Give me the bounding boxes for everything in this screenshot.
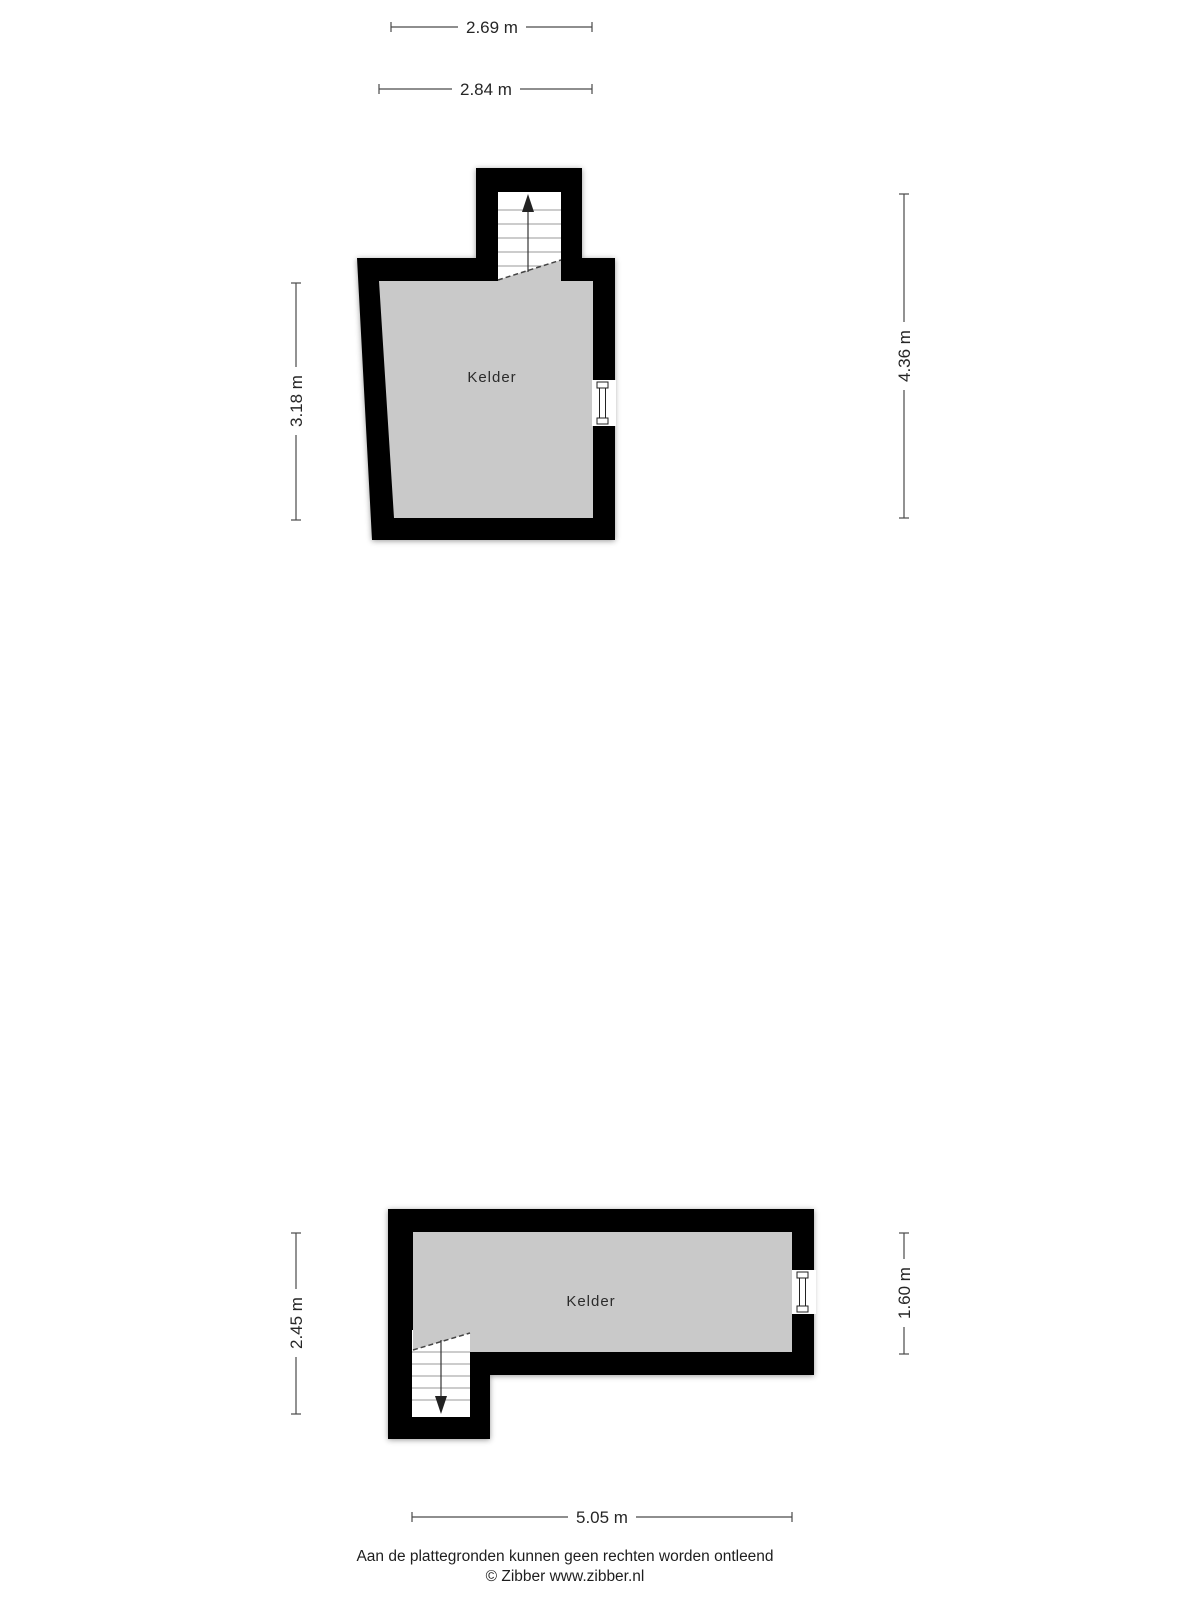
top-plan-window-icon bbox=[592, 380, 616, 426]
dim-top-right: 4.36 m bbox=[893, 194, 915, 518]
footer-copyright: © Zibber www.zibber.nl bbox=[486, 1568, 645, 1585]
dim-bottom-right-label: 1.60 m bbox=[895, 1267, 914, 1319]
bottom-room-label: Kelder bbox=[566, 1293, 615, 1310]
dim-top-inner: 2.69 m bbox=[391, 16, 592, 38]
dim-top-left: 3.18 m bbox=[285, 283, 307, 520]
footer-disclaimer: Aan de plattegronden kunnen geen rechten… bbox=[356, 1548, 773, 1565]
dim-top-right-label: 4.36 m bbox=[895, 330, 914, 382]
dim-top-outer: 2.84 m bbox=[379, 78, 592, 100]
dim-bottom-left-label: 2.45 m bbox=[287, 1297, 306, 1349]
dim-bottom-width: 5.05 m bbox=[412, 1506, 792, 1528]
floorplan-page: Kelder 2.69 m 2.84 m 3.18 m bbox=[0, 0, 1200, 1600]
floorplan-top: Kelder bbox=[357, 168, 616, 540]
floorplan-bottom: Kelder bbox=[388, 1209, 816, 1439]
dim-top-left-label: 3.18 m bbox=[287, 375, 306, 427]
top-room-label: Kelder bbox=[467, 369, 516, 386]
bottom-plan-window-icon bbox=[792, 1270, 816, 1314]
dim-top-inner-label: 2.69 m bbox=[466, 18, 518, 37]
footer: Aan de plattegronden kunnen geen rechten… bbox=[356, 1548, 773, 1585]
top-plan-room-floor bbox=[379, 260, 593, 518]
dim-bottom-right: 1.60 m bbox=[893, 1233, 915, 1354]
dim-bottom-width-label: 5.05 m bbox=[576, 1508, 628, 1527]
dim-bottom-left: 2.45 m bbox=[285, 1233, 307, 1414]
floorplan-canvas: Kelder 2.69 m 2.84 m 3.18 m bbox=[0, 0, 1200, 1600]
dim-top-outer-label: 2.84 m bbox=[460, 80, 512, 99]
